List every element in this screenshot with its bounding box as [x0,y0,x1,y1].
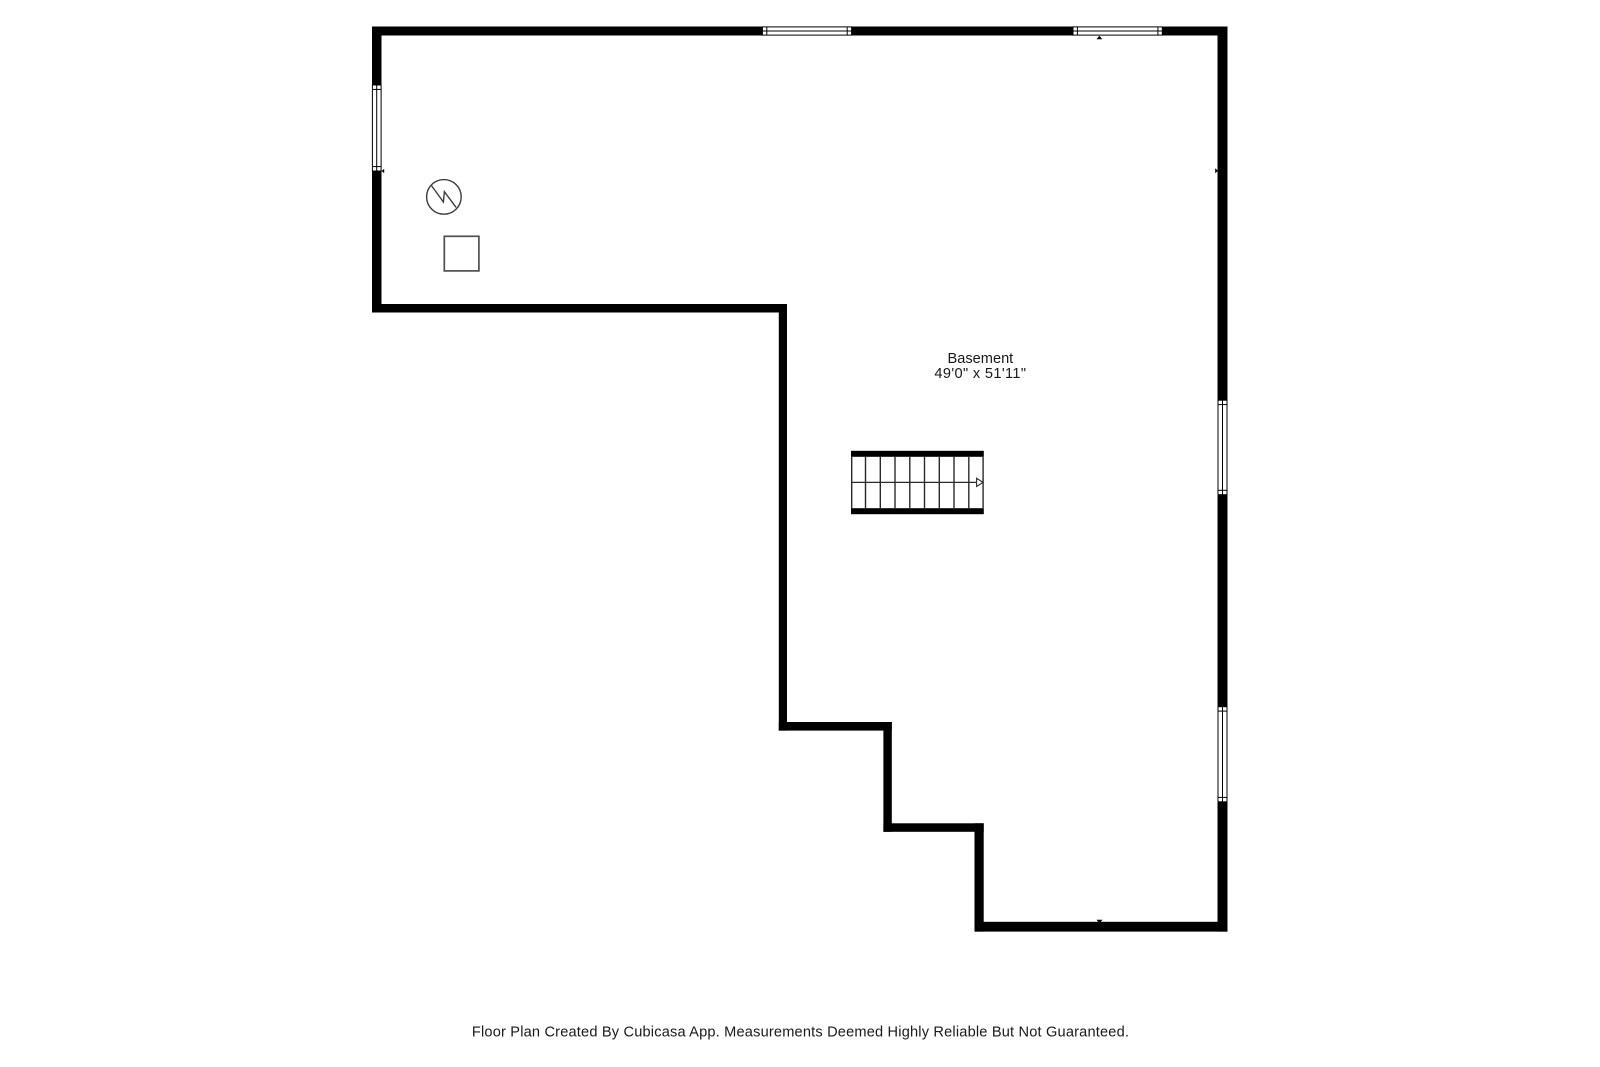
svg-text:Basement: Basement [948,351,1014,367]
svg-text:Floor Plan Created By Cubicasa: Floor Plan Created By Cubicasa App. Meas… [472,1024,1129,1040]
svg-text:49'0" x 51'11": 49'0" x 51'11" [934,366,1026,382]
